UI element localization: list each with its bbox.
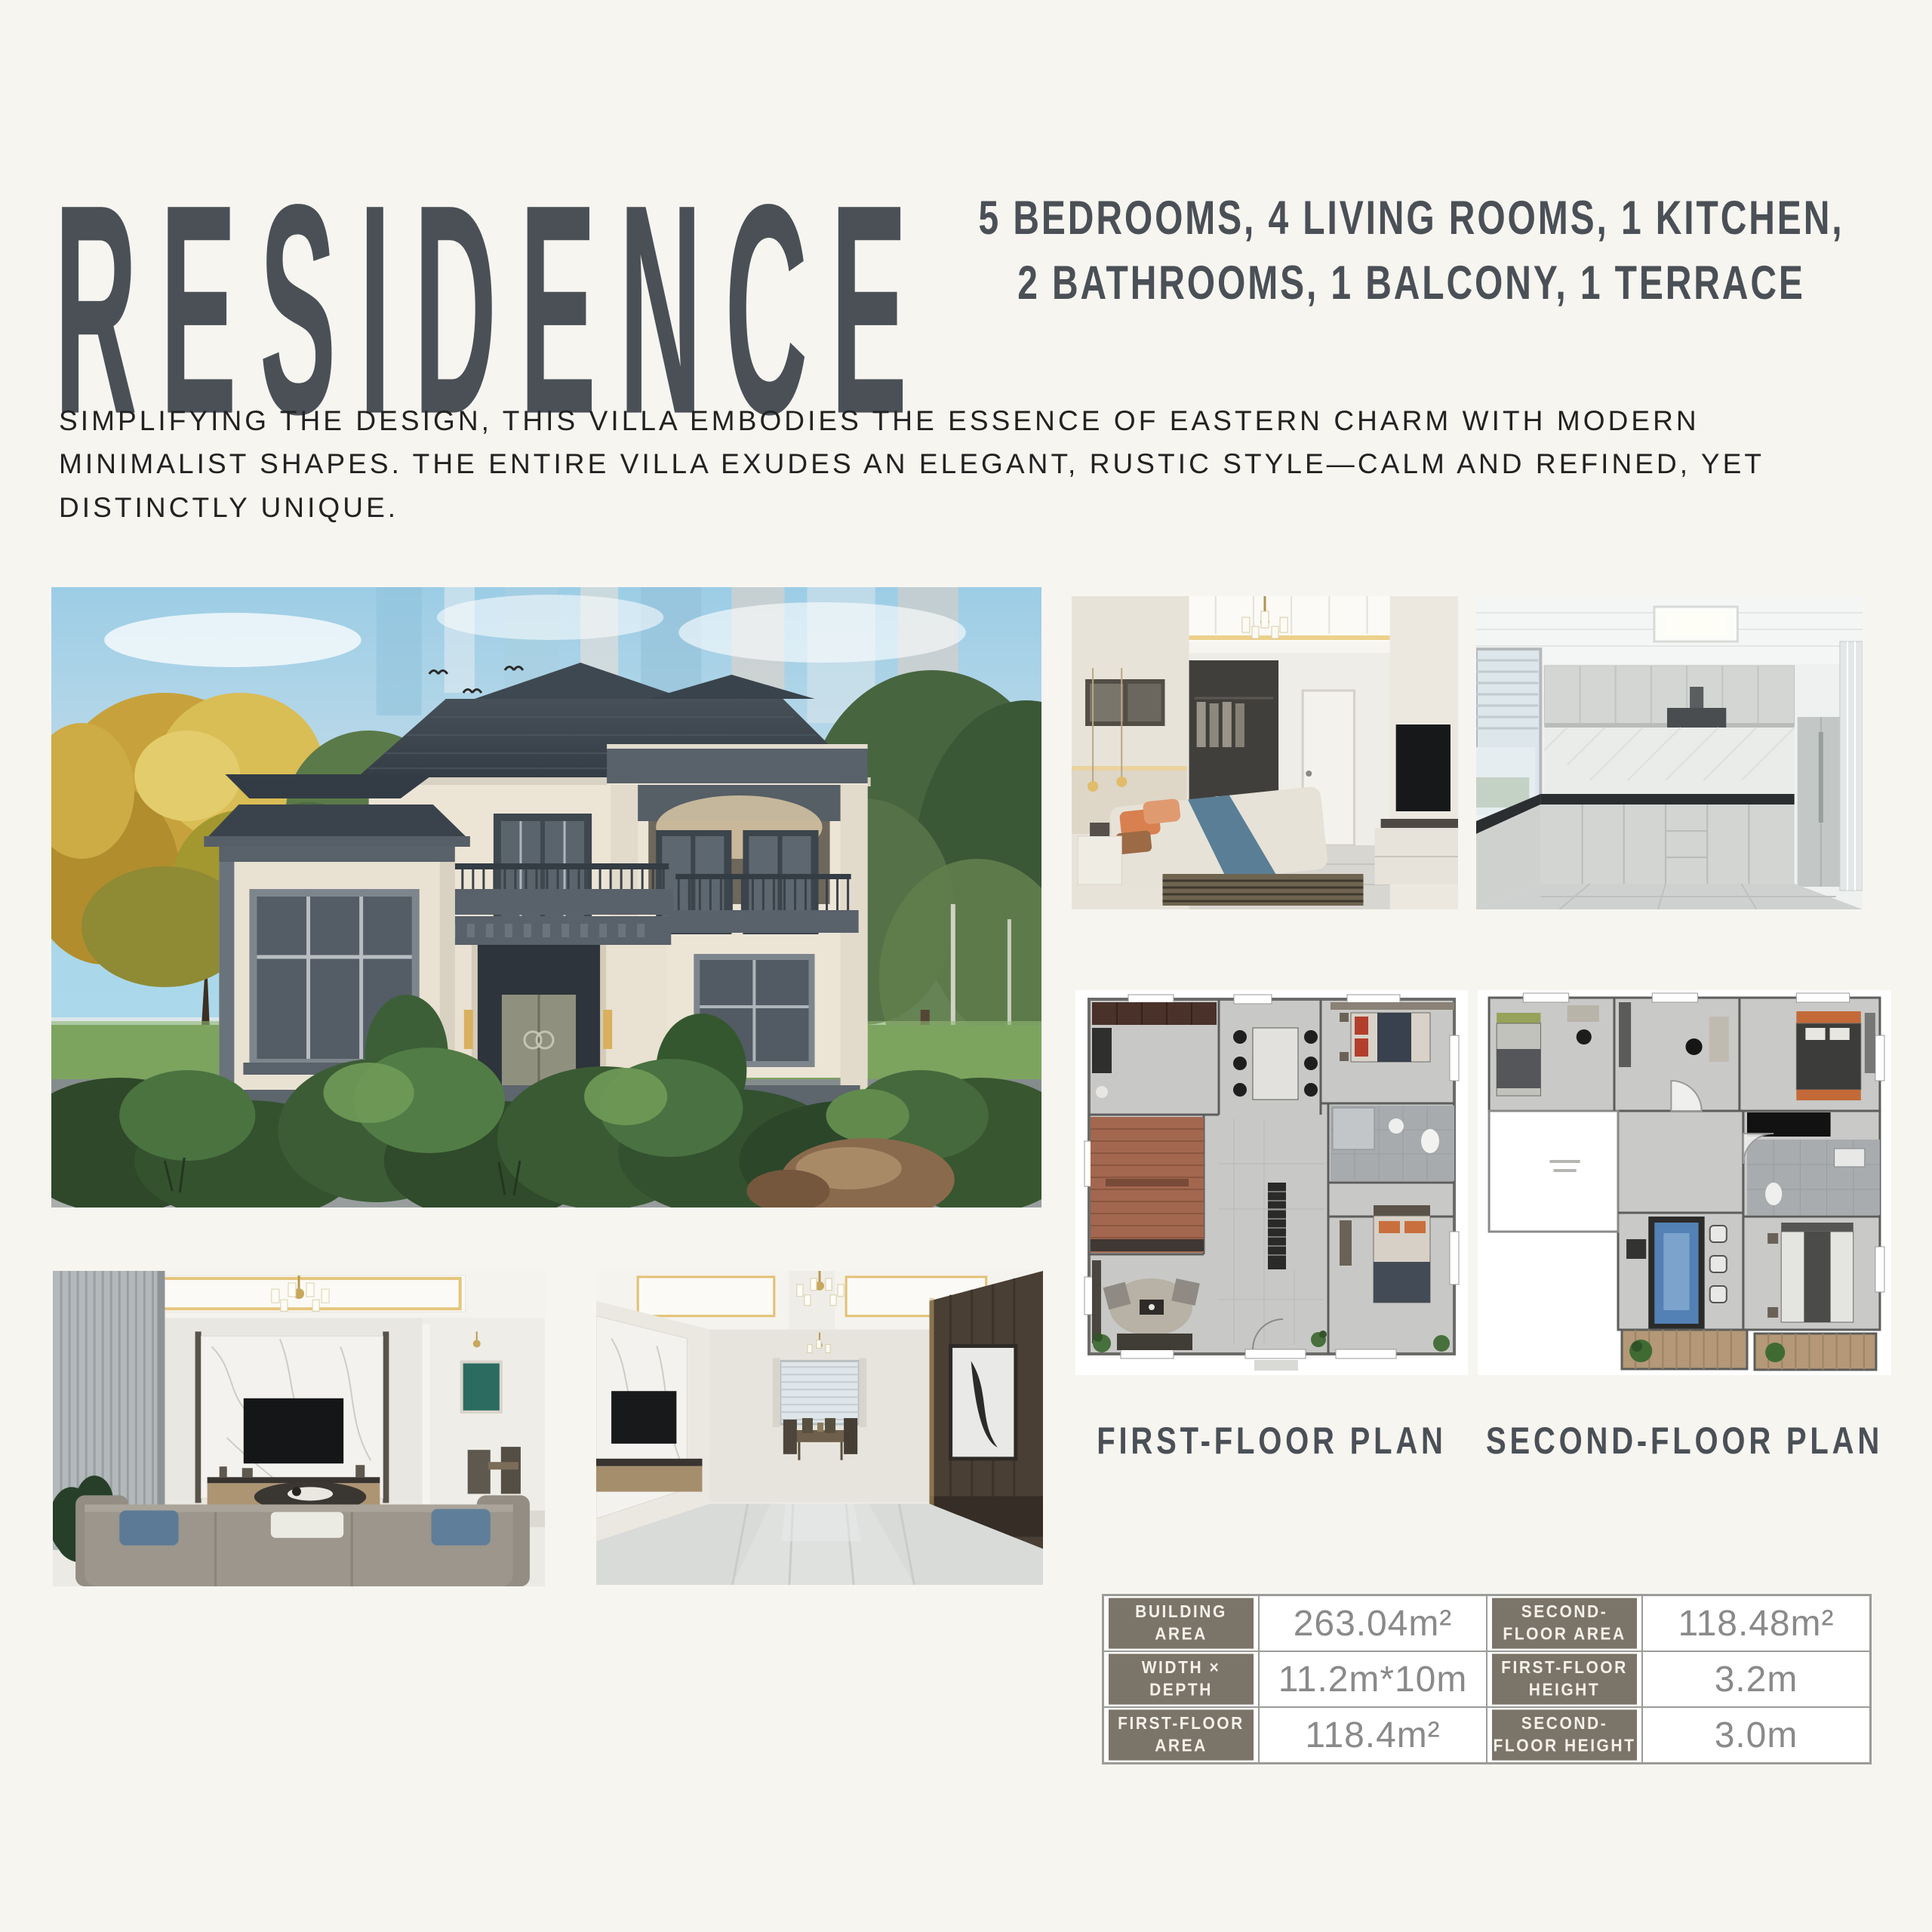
first-floor-plan-illustration	[1075, 990, 1468, 1375]
first-floor-plan-label: FIRST-FLOOR PLAN	[1075, 1420, 1468, 1463]
spec-label-first-floor-area: FIRST-FLOOR AREA	[1103, 1707, 1259, 1763]
villa-exterior-photo	[51, 587, 1041, 1207]
sofa	[75, 1495, 530, 1586]
dining-room	[1233, 1028, 1318, 1100]
bedroom-illustration	[1072, 596, 1458, 909]
dining-opening	[423, 1318, 545, 1513]
spec-label-second-floor-area: SECOND-FLOOR AREA	[1487, 1595, 1642, 1651]
kitchen-photo	[1476, 596, 1863, 909]
spec-value-building-area: 263.04m²	[1259, 1595, 1487, 1651]
hallway-photo	[596, 1271, 1043, 1585]
room-summary-line-1: 5 BEDROOMS, 4 LIVING ROOMS, 1 KITCHEN,	[940, 187, 1883, 252]
spec-table: BUILDING AREA 263.04m² SECOND-FLOOR AREA…	[1102, 1594, 1872, 1764]
spec-value-second-floor-area: 118.48m²	[1642, 1595, 1870, 1651]
kitchen-window	[1476, 649, 1540, 815]
living-room-illustration	[53, 1271, 545, 1586]
spec-label-second-floor-height: SECOND-FLOOR HEIGHT	[1487, 1707, 1642, 1763]
spec-label-width-depth: WIDTH × DEPTH	[1103, 1651, 1259, 1707]
spec-value-first-floor-area: 118.4m²	[1259, 1707, 1487, 1763]
room-summary: 5 BEDROOMS, 4 LIVING ROOMS, 1 KITCHEN, 2…	[940, 187, 1883, 316]
bedroom-photo	[1072, 596, 1458, 909]
second-floor-plan-illustration	[1478, 990, 1891, 1375]
spec-label-first-floor-height: FIRST-FLOOR HEIGHT	[1487, 1651, 1642, 1707]
second-floor-plan-image	[1478, 990, 1891, 1375]
villa-exterior-illustration	[51, 587, 1041, 1207]
second-floor-plan-label: SECOND-FLOOR PLAN	[1478, 1420, 1891, 1463]
spec-value-second-floor-height: 3.0m	[1642, 1707, 1870, 1763]
spec-label-building-area: BUILDING AREA	[1103, 1595, 1259, 1651]
far-window	[773, 1358, 866, 1427]
kitchen-illustration	[1476, 596, 1863, 909]
spec-value-first-floor-height: 3.2m	[1642, 1651, 1870, 1707]
room-summary-line-2: 2 BATHROOMS, 1 BALCONY, 1 TERRACE	[940, 252, 1883, 317]
staircase	[1268, 1183, 1286, 1269]
wood-floor-room	[1091, 1117, 1204, 1253]
first-floor-plan-image	[1075, 990, 1468, 1375]
villa-description: SIMPLIFYING THE DESIGN, THIS VILLA EMBOD…	[59, 399, 1795, 529]
living-room-photo	[53, 1271, 545, 1586]
left-marble-wall	[596, 1301, 710, 1541]
spec-value-width-depth: 11.2m*10m	[1259, 1651, 1487, 1707]
hallway-illustration	[596, 1271, 1043, 1585]
brochure-page: RESIDENCE 5 BEDROOMS, 4 LIVING ROOMS, 1 …	[0, 0, 1932, 1932]
bathroom	[1331, 1106, 1454, 1181]
